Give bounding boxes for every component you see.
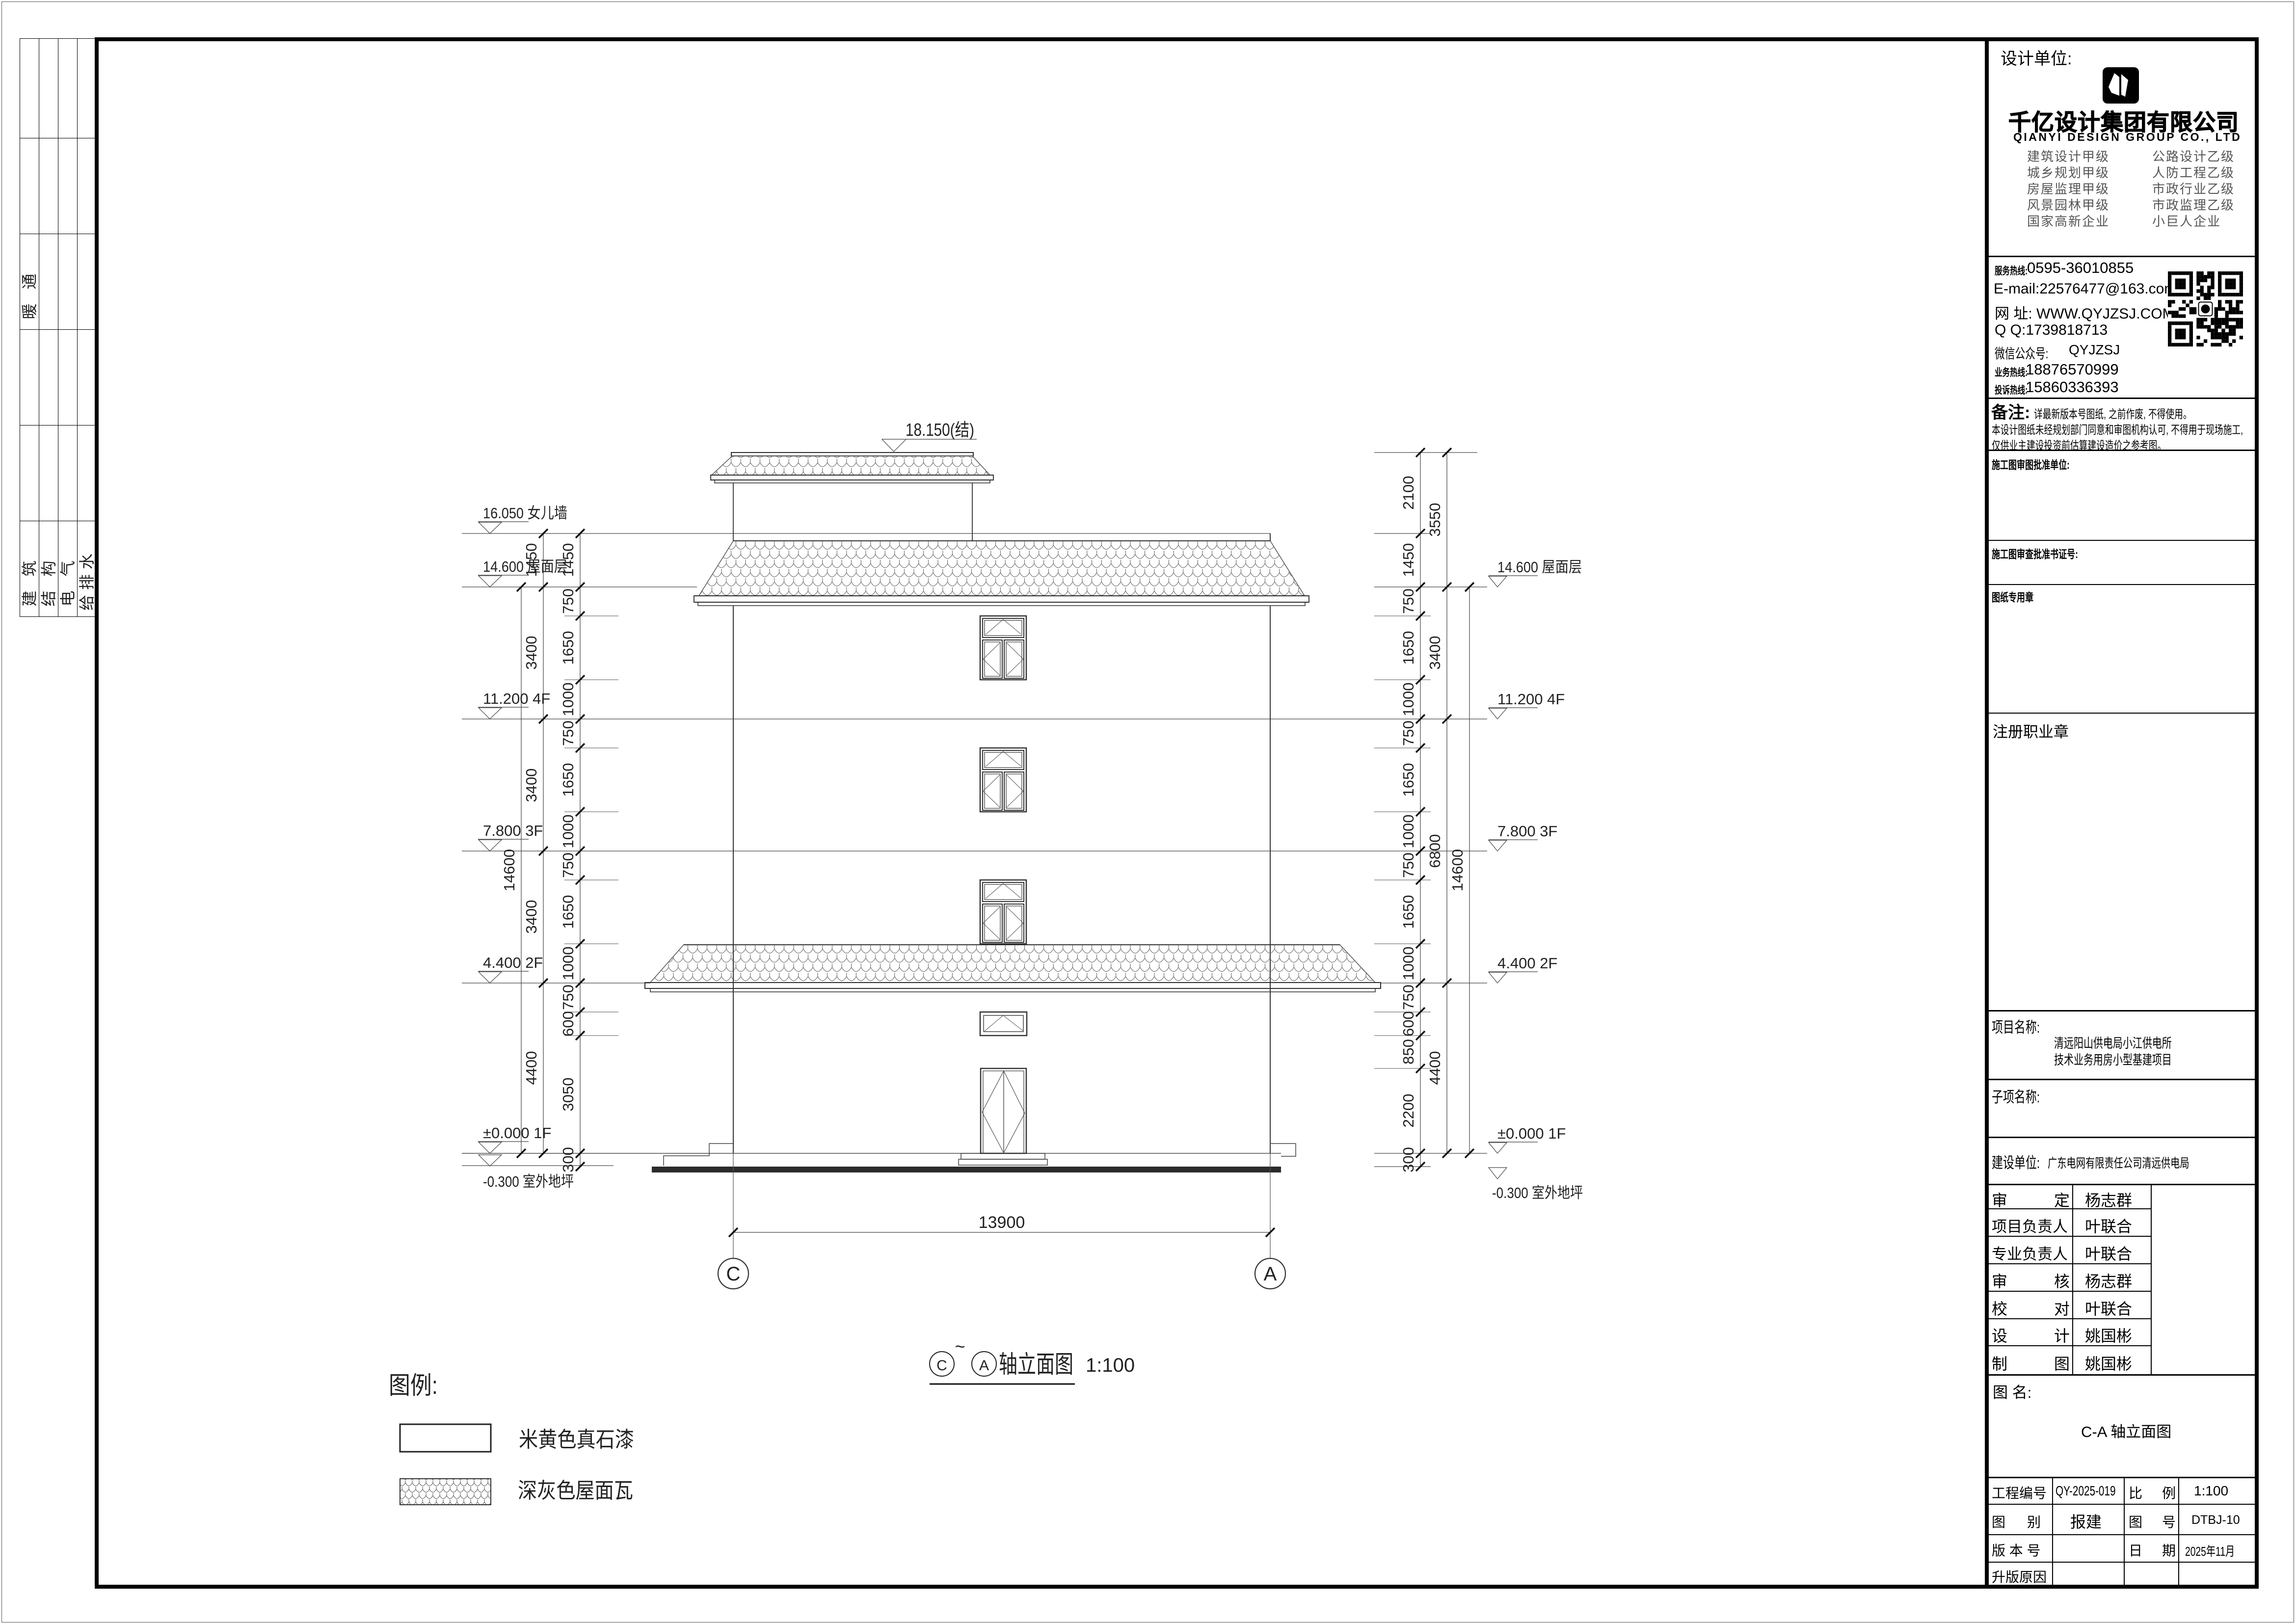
svg-text:750: 750 [560, 588, 577, 614]
svg-text:A: A [1264, 1263, 1277, 1285]
svg-text:3400: 3400 [523, 769, 540, 802]
svg-text:11.200 4F: 11.200 4F [1497, 691, 1565, 708]
svg-text:C: C [936, 1358, 947, 1374]
svg-text:600: 600 [560, 1011, 577, 1037]
svg-text:4400: 4400 [523, 1051, 540, 1085]
svg-text:3550: 3550 [1426, 503, 1443, 537]
svg-text:深灰色屋面瓦: 深灰色屋面瓦 [518, 1479, 633, 1503]
svg-text:米黄色真石漆: 米黄色真石漆 [519, 1428, 634, 1452]
svg-text:3050: 3050 [560, 1078, 577, 1112]
svg-text:850: 850 [1400, 1039, 1417, 1065]
svg-text:750: 750 [560, 852, 577, 878]
svg-text:±0.000 1F: ±0.000 1F [1497, 1125, 1566, 1142]
svg-text:6800: 6800 [1426, 834, 1443, 868]
svg-text:18.150(结): 18.150(结) [906, 420, 974, 440]
svg-text:1000: 1000 [560, 683, 577, 717]
svg-text:4.400 2F: 4.400 2F [483, 954, 543, 971]
svg-text:1650: 1650 [1400, 631, 1417, 665]
svg-text:1000: 1000 [1400, 947, 1417, 981]
svg-text:11.200 4F: 11.200 4F [483, 690, 550, 707]
svg-text:1000: 1000 [560, 947, 577, 981]
svg-text:图例:: 图例: [389, 1372, 438, 1399]
svg-text:±0.000 1F: ±0.000 1F [483, 1124, 551, 1142]
svg-text:-0.300 室外地坪: -0.300 室外地坪 [1492, 1184, 1583, 1201]
svg-text:1650: 1650 [560, 763, 577, 797]
svg-text:750: 750 [1400, 852, 1417, 878]
svg-text:14.600 屋面层: 14.600 屋面层 [1497, 559, 1582, 576]
svg-text:1650: 1650 [560, 895, 577, 929]
svg-text:1000: 1000 [1400, 683, 1417, 717]
svg-text:14.600 屋面层: 14.600 屋面层 [483, 558, 567, 575]
svg-text:3400: 3400 [1426, 636, 1443, 670]
svg-text:2200: 2200 [1400, 1094, 1417, 1128]
svg-text:300: 300 [560, 1147, 577, 1172]
svg-text:3400: 3400 [523, 636, 540, 670]
svg-text:轴立面图: 轴立面图 [999, 1351, 1073, 1378]
svg-text:~: ~ [955, 1336, 965, 1357]
svg-text:1650: 1650 [1400, 895, 1417, 929]
svg-text:1:100: 1:100 [1086, 1355, 1135, 1376]
svg-text:600: 600 [1400, 1011, 1417, 1037]
svg-text:7.800 3F: 7.800 3F [483, 822, 543, 839]
svg-text:-0.300 室外地坪: -0.300 室外地坪 [483, 1173, 574, 1190]
svg-text:1650: 1650 [1400, 763, 1417, 797]
svg-text:4.400 2F: 4.400 2F [1497, 955, 1557, 972]
svg-text:750: 750 [560, 720, 577, 746]
svg-text:2100: 2100 [1400, 476, 1417, 510]
svg-text:1000: 1000 [560, 815, 577, 849]
svg-text:4400: 4400 [1426, 1051, 1443, 1085]
svg-text:750: 750 [1400, 588, 1417, 614]
svg-text:14600: 14600 [1449, 849, 1466, 891]
svg-text:300: 300 [1400, 1147, 1417, 1172]
svg-text:13900: 13900 [979, 1213, 1025, 1232]
svg-text:7.800 3F: 7.800 3F [1497, 823, 1557, 840]
svg-text:1450: 1450 [1400, 543, 1417, 577]
svg-text:3400: 3400 [523, 900, 540, 934]
svg-text:14600: 14600 [501, 849, 518, 891]
svg-text:A: A [979, 1358, 989, 1374]
svg-text:16.050 女儿墙: 16.050 女儿墙 [483, 505, 567, 522]
svg-text:750: 750 [1400, 720, 1417, 746]
svg-text:750: 750 [1400, 985, 1417, 1010]
svg-text:C: C [726, 1263, 741, 1285]
svg-text:1000: 1000 [1400, 815, 1417, 849]
svg-text:750: 750 [560, 985, 577, 1010]
svg-text:1650: 1650 [560, 631, 577, 665]
